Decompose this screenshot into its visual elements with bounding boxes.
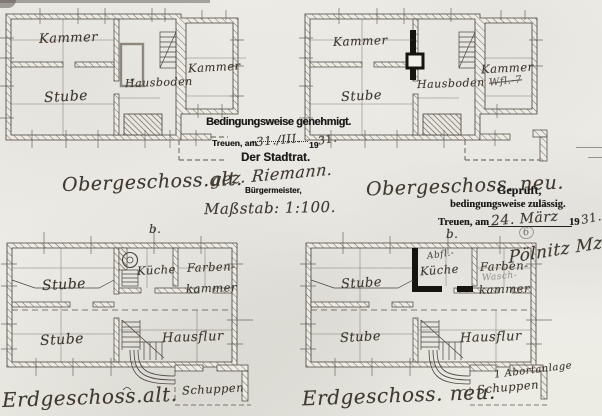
room-label-hausflur: Hausflur	[460, 329, 522, 346]
review-year-prefix: 19	[569, 217, 580, 228]
room-label-farbenkammer-line1: Farben-	[187, 259, 236, 275]
approval-stamp-place: Treuen, am	[212, 138, 257, 148]
room-label-farbenkammer-line2: kammer	[186, 280, 237, 296]
room-label-hausboden: Hausboden	[125, 75, 193, 90]
room-label-kueche: Küche	[420, 262, 460, 279]
room-label-stube: Stube	[42, 276, 87, 294]
room-label-stube: Stube	[341, 88, 383, 105]
review-stamp-place: Treuen, am	[438, 217, 489, 228]
room-label-stube: Stube	[40, 331, 85, 349]
room-label-kammer: Kammer	[188, 59, 241, 76]
room-label-stube: Stube	[44, 88, 89, 106]
approval-stamp-line1: Bedingungsweise genehmigt.	[206, 116, 351, 128]
review-stamp-line1: Geprüft,	[497, 183, 541, 198]
approval-date-handwritten: 31./III.	[255, 131, 301, 149]
stray-mark-right-2	[588, 157, 602, 158]
room-label-kammer: Kammer	[481, 60, 534, 77]
scale-note: Maßstab: 1:100.	[204, 198, 336, 218]
scan-edge-top	[0, 0, 210, 3]
room-label-kammer: Kammer	[39, 30, 99, 47]
room-label-kammer: Kammer	[333, 33, 388, 49]
section-marker: b.	[446, 227, 459, 241]
review-year-handwritten: 31.	[580, 209, 602, 227]
approval-year-prefix: 19	[309, 140, 318, 150]
room-label-kueche: Küche	[137, 262, 177, 278]
room-label-stube: Stube	[340, 329, 382, 346]
room-label-farbenkammer-line2: kammer	[479, 281, 530, 297]
scan-edge-corner	[0, 0, 16, 8]
room-label-hausflur: Hausflur	[162, 329, 224, 346]
room-label-hausboden: Hausboden	[417, 76, 485, 91]
stray-mark-right-1	[576, 147, 602, 148]
approval-signer-title: Bürgermeister,	[245, 186, 301, 195]
room-label-stube: Stube	[341, 275, 383, 292]
section-marker: b.	[149, 222, 162, 236]
og-neu-floorplan	[299, 8, 551, 176]
og-alt-floorplan	[0, 8, 250, 176]
scanned-floorplan-sheet: Kammer Stube Hausboden Kammer Obergescho…	[0, 0, 602, 416]
